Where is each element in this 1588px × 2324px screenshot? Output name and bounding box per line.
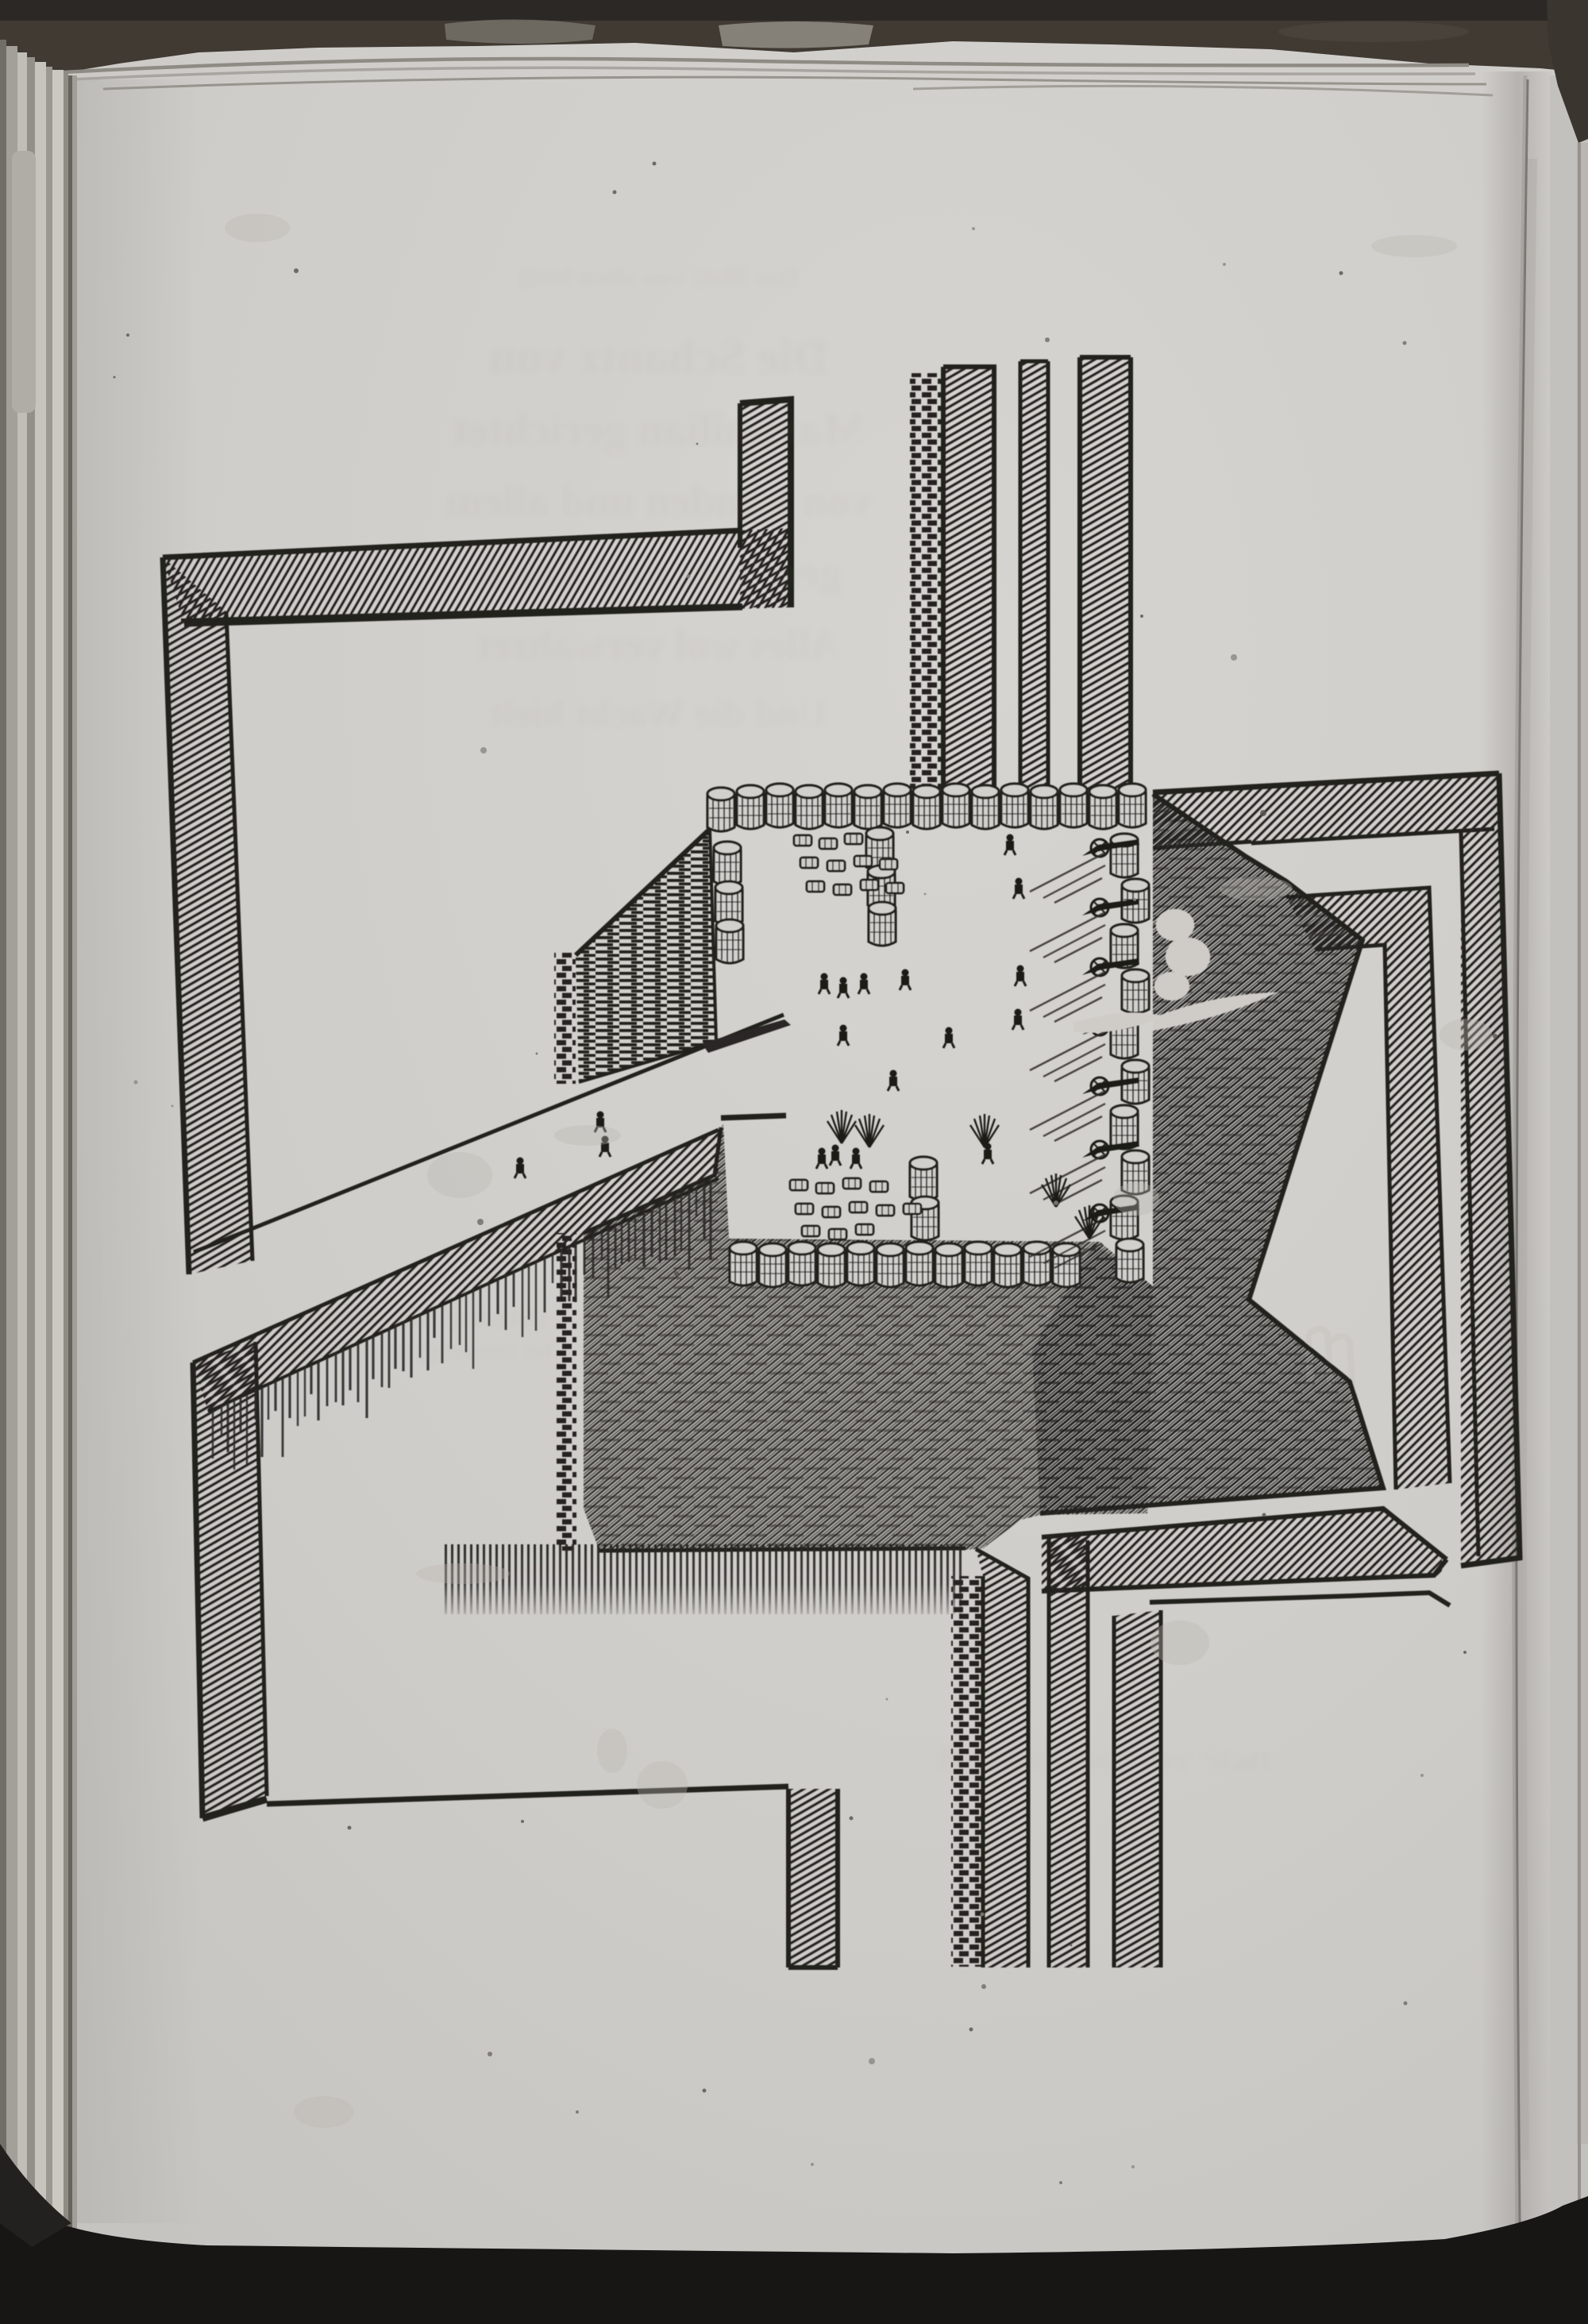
svg-text:Maximilian gerichtet: Maximilian gerichtet [452,403,865,455]
svg-text:geschutz und Volck: geschutz und Volck [476,549,842,598]
svg-text:Und die Wacht hielt: Und die Wacht hielt [490,691,828,735]
svg-text:verwahret gewesen ist worden: verwahret gewesen ist worden [286,1334,653,1366]
svg-text:Alles wol verwahret: Alles wol verwahret [477,621,841,669]
svg-text:von Landen und allem: von Landen und allem [446,477,873,526]
svg-text:womit die Schantz beleget und: womit die Schantz beleget und [302,1299,715,1335]
svg-text:Die Schantz von: Die Schantz von [489,330,828,384]
svg-text:Beschiessung der Statt: Beschiessung der Statt [937,1740,1272,1779]
svg-text:Das Blatt von alten Welt: Das Blatt von alten Welt [518,263,799,292]
